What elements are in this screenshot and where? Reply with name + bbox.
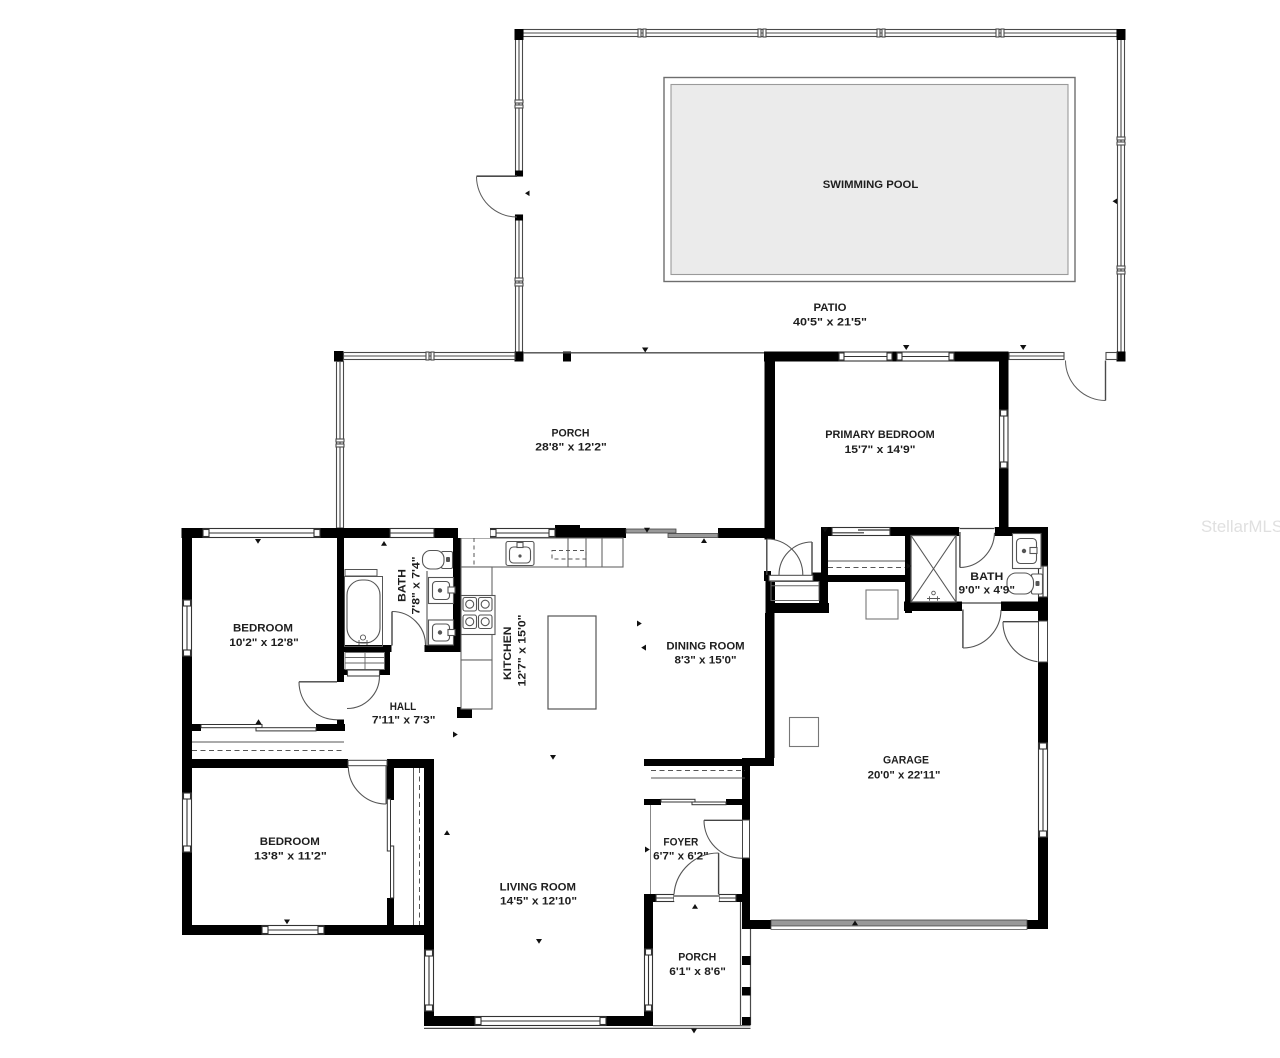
- svg-text:9'0" x 4'9": 9'0" x 4'9": [959, 585, 1016, 597]
- svg-text:14'5" x 12'10": 14'5" x 12'10": [500, 896, 577, 908]
- svg-text:BEDROOM: BEDROOM: [233, 623, 293, 635]
- svg-text:PORCH: PORCH: [552, 427, 590, 439]
- svg-text:7'8" x 7'4": 7'8" x 7'4": [411, 557, 423, 615]
- svg-text:PORCH: PORCH: [678, 952, 716, 964]
- svg-text:40'5" x 21'5": 40'5" x 21'5": [793, 316, 867, 328]
- svg-text:8'3" x 15'0": 8'3" x 15'0": [675, 655, 737, 667]
- svg-text:10'2" x 12'8": 10'2" x 12'8": [229, 637, 299, 649]
- svg-text:DINING ROOM: DINING ROOM: [666, 640, 744, 652]
- svg-text:28'8" x 12'2": 28'8" x 12'2": [535, 442, 607, 454]
- svg-text:LIVING ROOM: LIVING ROOM: [500, 881, 576, 893]
- svg-text:PATIO: PATIO: [814, 302, 847, 314]
- svg-text:BATH: BATH: [970, 571, 1003, 583]
- svg-text:GARAGE: GARAGE: [883, 755, 929, 767]
- svg-text:6'7" x 6'2": 6'7" x 6'2": [653, 850, 709, 862]
- svg-text:PRIMARY BEDROOM: PRIMARY BEDROOM: [825, 429, 935, 441]
- svg-text:6'1" x 8'6": 6'1" x 8'6": [669, 966, 726, 978]
- svg-text:20'0" x 22'11": 20'0" x 22'11": [868, 769, 941, 781]
- svg-text:KITCHEN: KITCHEN: [502, 626, 514, 680]
- svg-text:13'8" x 11'2": 13'8" x 11'2": [254, 850, 327, 862]
- svg-text:12'7" x 15'0": 12'7" x 15'0": [517, 615, 529, 687]
- svg-text:7'11" x 7'3": 7'11" x 7'3": [372, 714, 436, 726]
- svg-text:BEDROOM: BEDROOM: [260, 836, 320, 848]
- svg-text:HALL: HALL: [390, 701, 417, 713]
- svg-text:BATH: BATH: [397, 569, 409, 602]
- svg-text:SWIMMING POOL: SWIMMING POOL: [823, 179, 919, 191]
- svg-text:15'7" x 14'9": 15'7" x 14'9": [845, 444, 916, 456]
- svg-text:FOYER: FOYER: [663, 837, 698, 849]
- svg-text:StellarMLS: StellarMLS: [1201, 517, 1280, 536]
